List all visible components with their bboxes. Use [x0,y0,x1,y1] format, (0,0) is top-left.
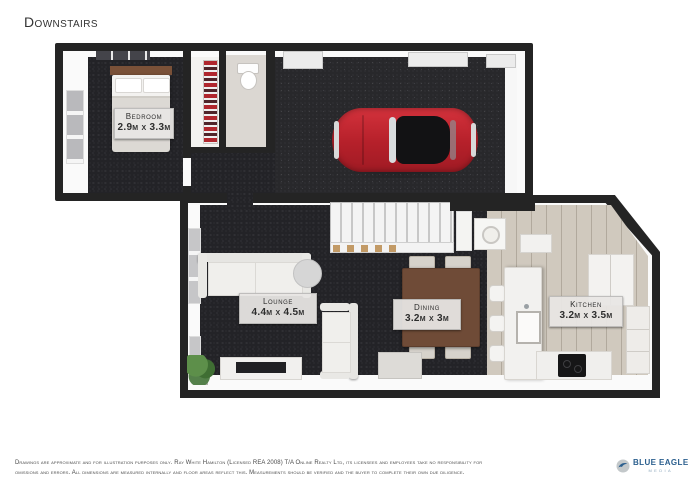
red-car [332,108,478,172]
dining-label: Dining 3.2m x 3m [393,299,461,330]
car-windshield [389,117,396,163]
logo-brand-text: BLUE EAGLE [633,458,689,467]
stair-post [347,245,354,252]
garage-door-panel-1 [283,51,323,69]
closet-shelves [203,60,218,144]
laundry-cabinet [520,234,552,253]
kitchen-counter [536,351,612,380]
bedroom-name: Bedroom [117,112,171,122]
sink-faucet [524,304,529,309]
logo-subtitle-text: MEDIA [648,468,673,474]
cooktop [558,354,586,377]
washing-machine [474,218,506,250]
lounge-dims: 4.4m x 4.5m [242,307,314,319]
car-front-bumper [334,121,339,159]
burner [574,365,582,373]
disclaimer-line-2: omissions and errors. All dimensions are… [15,468,495,478]
car-rear-bumper [471,123,476,157]
sofa-small [320,303,358,379]
kitchen-name: Kitchen [552,300,620,310]
garage-door-panel-3 [486,54,516,68]
floor-plan: Bedroom 2.9m x 3.3m Lounge 4.4m x 4.5m D… [0,0,700,500]
stair-post [333,245,340,252]
plant [187,355,215,385]
sofa-back [198,253,311,262]
tall-cabinets [626,306,650,374]
car-hood-line [362,115,364,165]
lounge-name: Lounge [242,297,314,307]
bathroom-garage-wall [266,43,275,155]
sideboard [378,352,422,379]
blue-eagle-logo: BLUE EAGLE MEDIA [616,458,689,474]
dining-name: Dining [396,303,458,313]
kitchen-dims: 3.2m x 3.5m [552,310,620,322]
sofa-cushion [208,262,256,296]
logo-text: BLUE EAGLE MEDIA [633,458,689,474]
hallway-floor [191,153,275,193]
car-cabin-roof [396,116,450,164]
bedroom-side-window [66,90,84,164]
stair-post [361,245,368,252]
stair-post [375,245,382,252]
laundry-wall [450,195,535,211]
car-rear-window [450,120,456,160]
burner [563,360,571,368]
bed-pillow-left [115,78,142,93]
tv-unit [220,357,302,380]
bedroom-door-jamb [183,186,191,193]
bedroom-dims: 2.9m x 3.3m [117,122,171,134]
bedroom-top-window [96,51,150,60]
garage-door-panel-2 [408,52,468,67]
hall-cupboard [456,211,472,251]
bedroom-closet-wall [183,43,191,158]
bed-headboard [110,66,172,75]
sofa-arm [320,303,350,311]
garage-right-wall-face [505,57,517,193]
sofa-arm [198,253,207,298]
disclaimer: Drawings are approximate and for illustr… [15,458,495,478]
island-sink [516,311,541,344]
dining-dims: 3.2m x 3m [396,313,458,325]
toilet-bowl [240,71,257,90]
hallway-doorway [227,188,253,210]
kitchen-label: Kitchen 3.2m x 3.5m [549,296,623,327]
tv-screen [236,362,286,373]
sofa-cushion [322,342,351,373]
lounge-label: Lounge 4.4m x 4.5m [239,293,317,324]
sofa-cushion [322,312,351,343]
eagle-icon [616,459,630,473]
staircase [330,202,454,244]
washing-machine-door [482,226,500,244]
disclaimer-line-1: Drawings are approximate and for illustr… [15,458,495,468]
stair-post [389,245,396,252]
cabinet-line [627,329,649,330]
floorplan-page: Downstairs [0,0,700,500]
bedroom-label: Bedroom 2.9m x 3.3m [114,108,174,139]
round-side-table [293,259,322,288]
cabinet-line [627,351,649,352]
bed-pillow-right [143,78,170,93]
closet-bathroom-wall [219,43,226,155]
